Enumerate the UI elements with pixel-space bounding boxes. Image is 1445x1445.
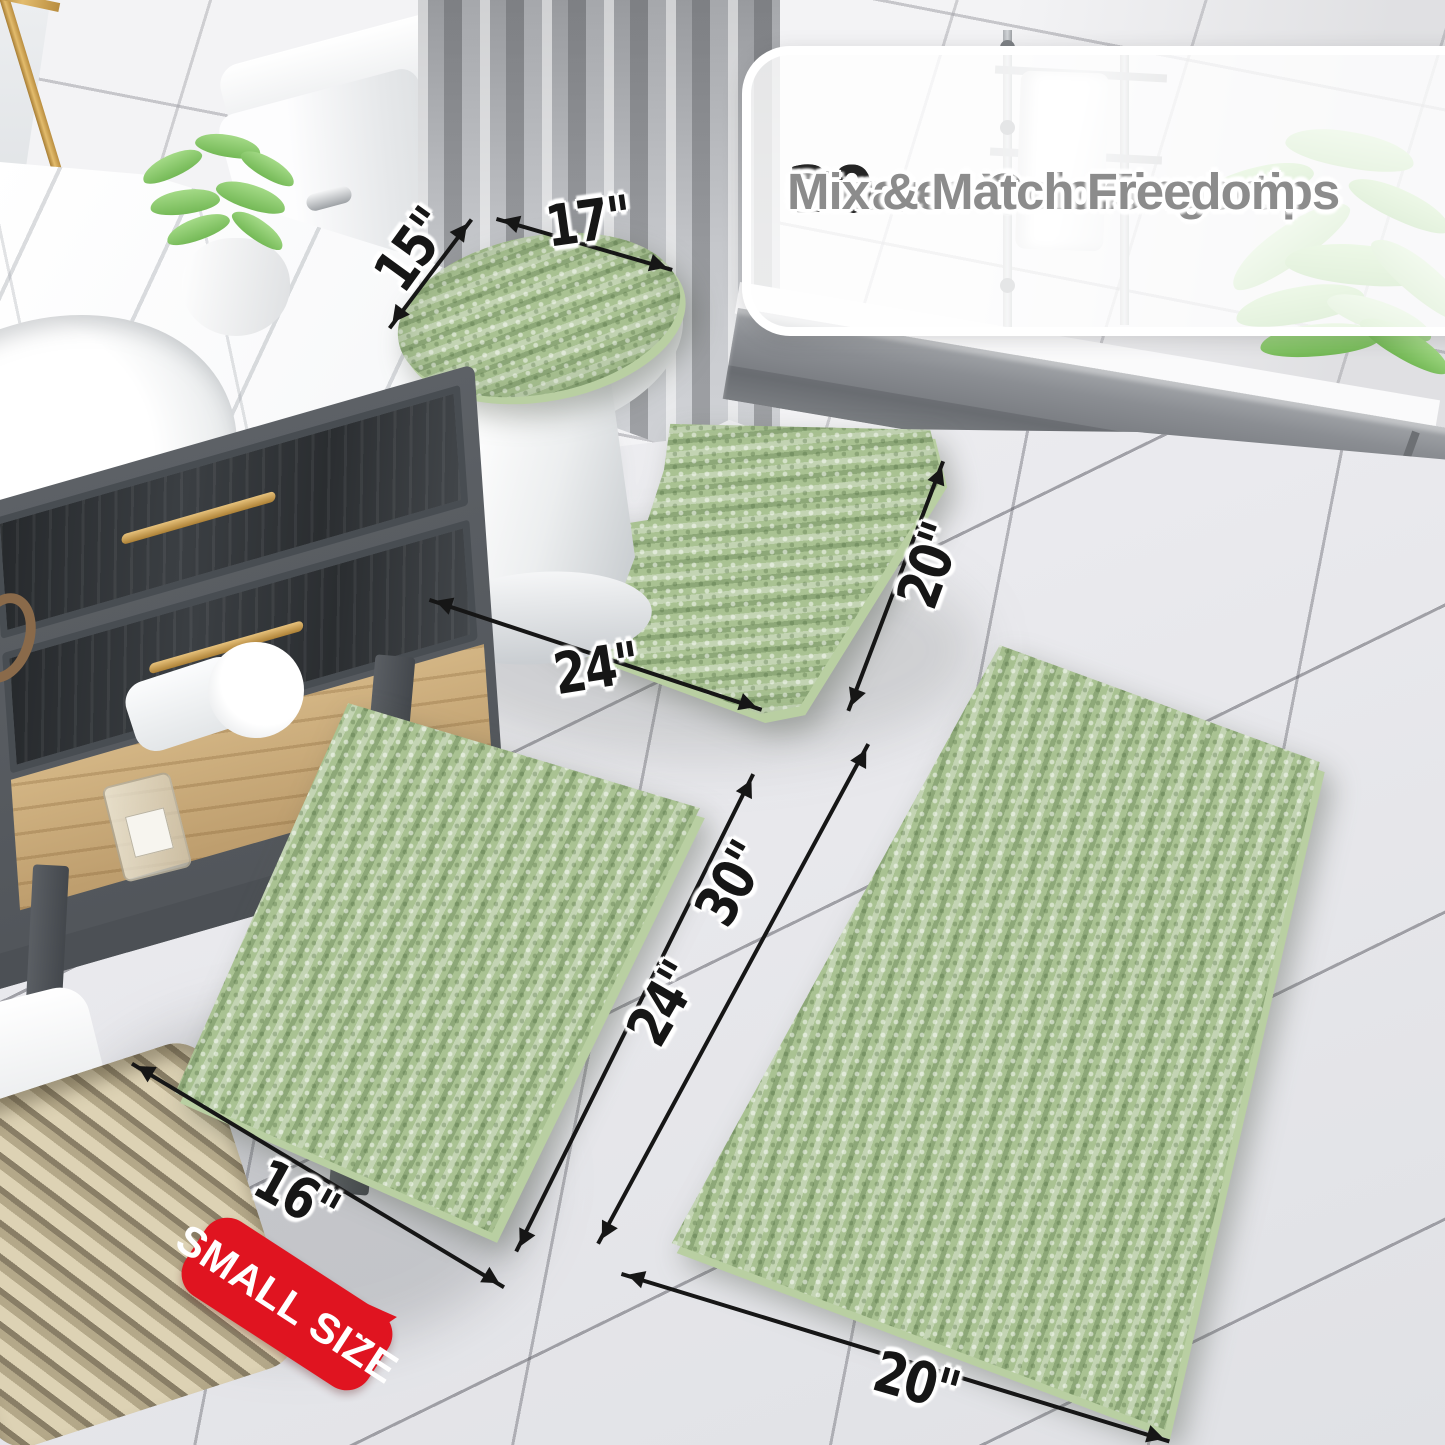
product-photo-bathroom-rug-set: 17" 15" 24" 20" 24" 30" 16" 20" SMALL SI… — [0, 0, 1445, 1445]
plant-pot — [182, 238, 290, 336]
bottle-label — [125, 807, 174, 857]
rolled-towel — [208, 642, 304, 738]
feature-callout-box: ✓ 20+ Sizes at Your Fingertips ✓ 30+ Cur… — [742, 46, 1445, 336]
callout-label-mix-match: Mix & Match Freedom — [787, 166, 1295, 217]
drawer-handle — [121, 491, 276, 545]
dimension-label-contour-width: 24" — [549, 630, 643, 708]
dimension-label-lid-width: 17" — [542, 183, 635, 260]
